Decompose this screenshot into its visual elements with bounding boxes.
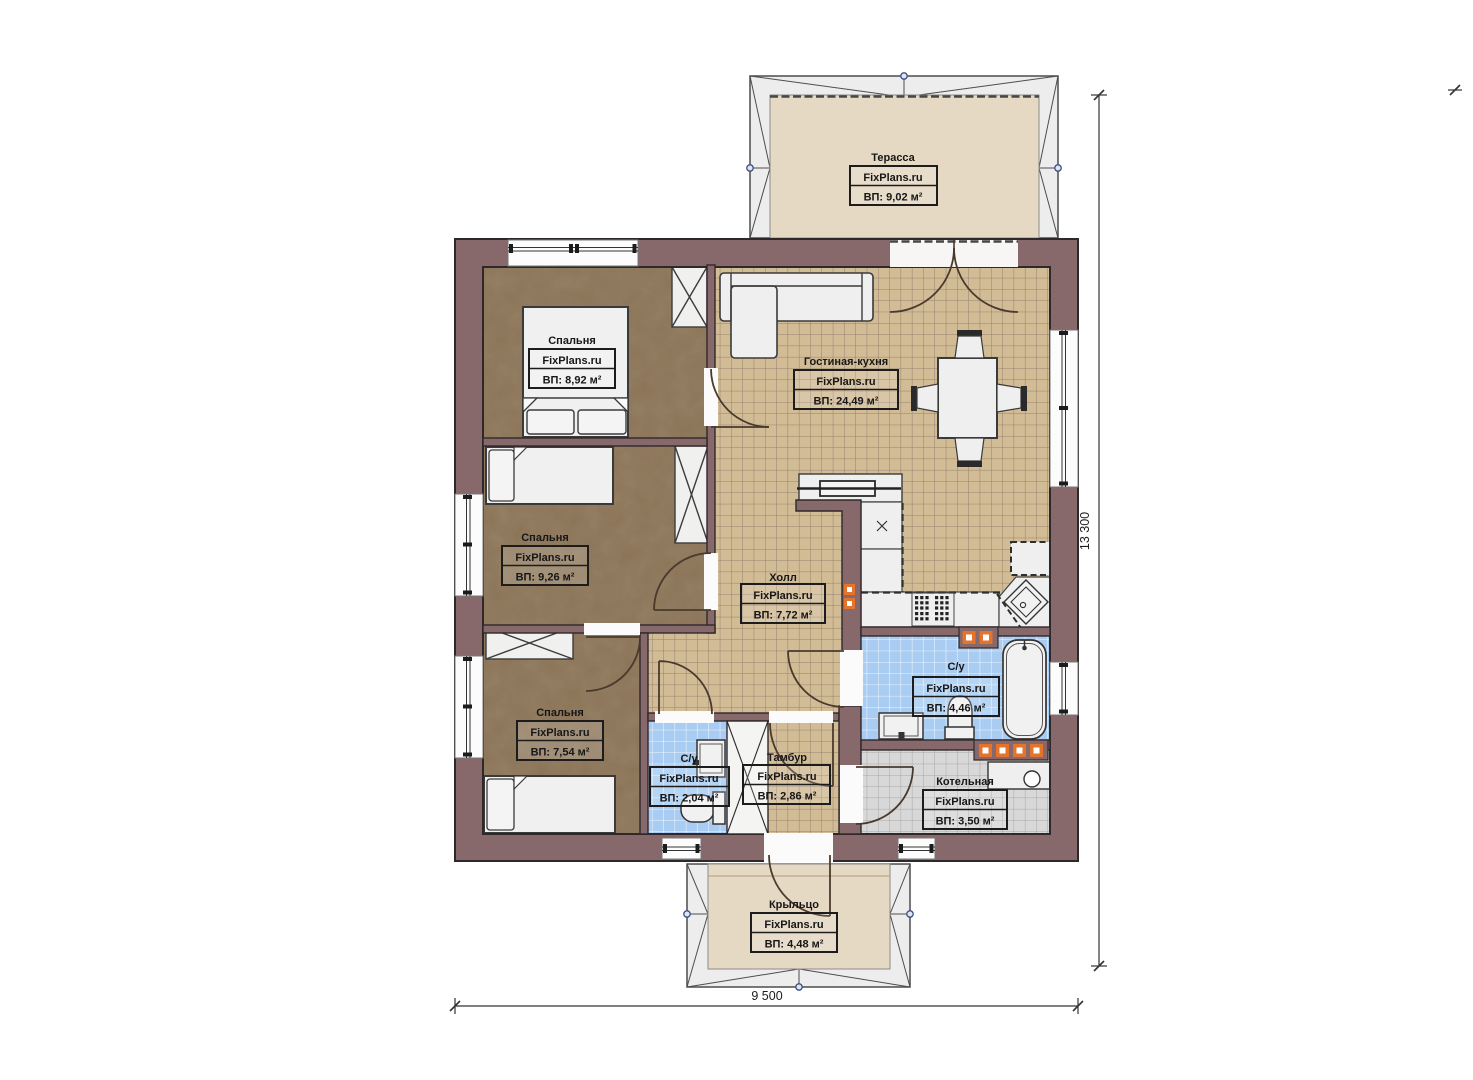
svg-text:FixPlans.ru: FixPlans.ru bbox=[863, 172, 922, 184]
svg-text:FixPlans.ru: FixPlans.ru bbox=[816, 376, 875, 388]
svg-text:13 300: 13 300 bbox=[1078, 512, 1092, 550]
svg-text:ВП: 9,02 м²: ВП: 9,02 м² bbox=[864, 192, 923, 204]
svg-text:ВП: 24,49 м²: ВП: 24,49 м² bbox=[814, 396, 879, 408]
svg-text:Терасса: Терасса bbox=[871, 152, 915, 164]
svg-text:Гостиная-кухня: Гостиная-кухня bbox=[804, 356, 888, 368]
svg-text:ВП: 3,50 м²: ВП: 3,50 м² bbox=[936, 816, 995, 828]
svg-text:FixPlans.ru: FixPlans.ru bbox=[935, 796, 994, 808]
svg-text:FixPlans.ru: FixPlans.ru bbox=[753, 590, 812, 602]
svg-text:ВП: 4,48 м²: ВП: 4,48 м² bbox=[765, 939, 824, 951]
svg-text:Тамбур: Тамбур bbox=[767, 752, 807, 764]
svg-text:FixPlans.ru: FixPlans.ru bbox=[659, 773, 718, 785]
svg-text:ВП: 2,86 м²: ВП: 2,86 м² bbox=[758, 791, 817, 803]
svg-text:Спальня: Спальня bbox=[536, 707, 584, 719]
svg-text:ВП: 4,46 м²: ВП: 4,46 м² bbox=[927, 703, 986, 715]
svg-text:FixPlans.ru: FixPlans.ru bbox=[515, 552, 574, 564]
svg-text:Холл: Холл bbox=[769, 572, 797, 584]
svg-text:С/у: С/у bbox=[680, 753, 698, 765]
svg-text:С/у: С/у bbox=[947, 661, 965, 673]
svg-text:ВП: 9,26 м²: ВП: 9,26 м² bbox=[516, 572, 575, 584]
svg-text:FixPlans.ru: FixPlans.ru bbox=[530, 727, 589, 739]
svg-text:FixPlans.ru: FixPlans.ru bbox=[757, 771, 816, 783]
svg-text:FixPlans.ru: FixPlans.ru bbox=[542, 355, 601, 367]
svg-text:FixPlans.ru: FixPlans.ru bbox=[764, 919, 823, 931]
svg-text:Спальня: Спальня bbox=[521, 532, 569, 544]
svg-text:ВП: 7,54 м²: ВП: 7,54 м² bbox=[531, 747, 590, 759]
svg-text:FixPlans.ru: FixPlans.ru bbox=[926, 683, 985, 695]
svg-text:9 500: 9 500 bbox=[751, 989, 782, 1003]
svg-text:Спальня: Спальня bbox=[548, 335, 596, 347]
svg-text:ВП: 7,72 м²: ВП: 7,72 м² bbox=[754, 610, 813, 622]
svg-text:Котельная: Котельная bbox=[936, 776, 994, 788]
svg-text:ВП: 2,04 м²: ВП: 2,04 м² bbox=[660, 793, 719, 805]
svg-text:ВП: 8,92 м²: ВП: 8,92 м² bbox=[543, 375, 602, 387]
svg-text:Крыльцо: Крыльцо bbox=[769, 899, 819, 911]
